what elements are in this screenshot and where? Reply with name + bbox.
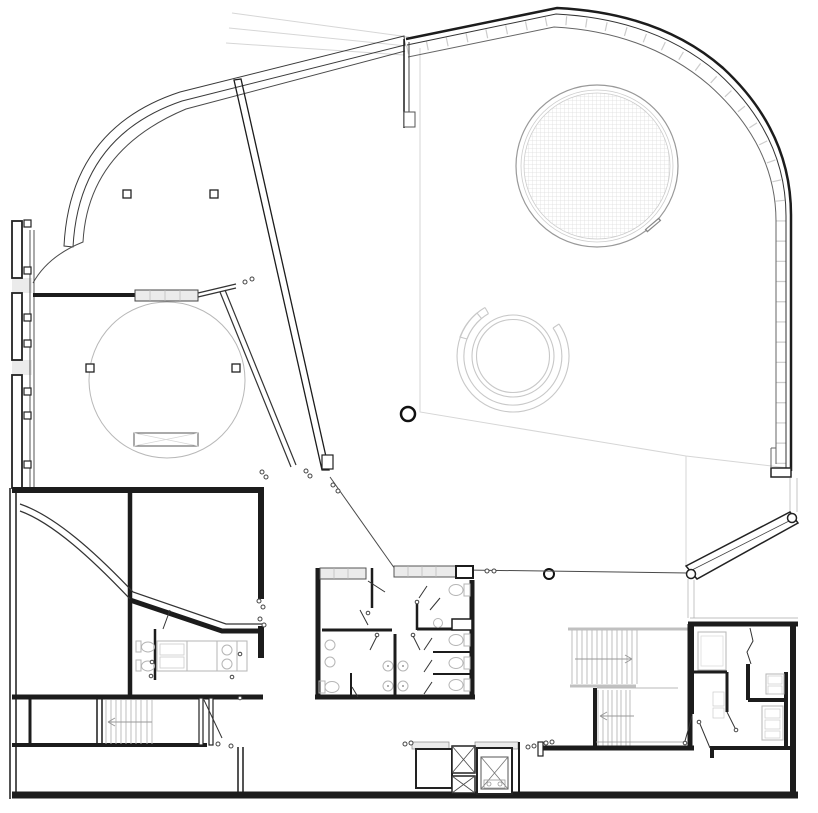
curved-ramp-wall — [20, 504, 262, 631]
elevator-block — [412, 742, 519, 794]
wall-north-of-circle-room — [33, 284, 236, 301]
circular-room — [89, 302, 245, 458]
entry-canopy — [686, 512, 798, 579]
main-stair — [538, 624, 694, 756]
door-swing-symbols — [149, 277, 738, 749]
west-restroom-laundry — [136, 629, 247, 680]
exterior-wall-northeast — [404, 8, 791, 477]
square-column-grid — [24, 190, 240, 468]
bottom-right-rooms — [688, 618, 798, 758]
diagonal-partition-wall — [220, 79, 333, 470]
west-stair — [106, 700, 152, 744]
hall-south-glass-lines — [330, 477, 688, 573]
floor-plan-svg — [0, 0, 818, 813]
interior-walls-west-block — [12, 490, 264, 795]
floor-plan-canvas — [0, 0, 818, 813]
site-contour-lines — [226, 13, 409, 55]
circular-skylight — [516, 85, 678, 247]
round-columns — [401, 407, 554, 579]
curved-exterior-wall-northwest — [33, 36, 405, 283]
spiral-ramp — [457, 308, 569, 412]
